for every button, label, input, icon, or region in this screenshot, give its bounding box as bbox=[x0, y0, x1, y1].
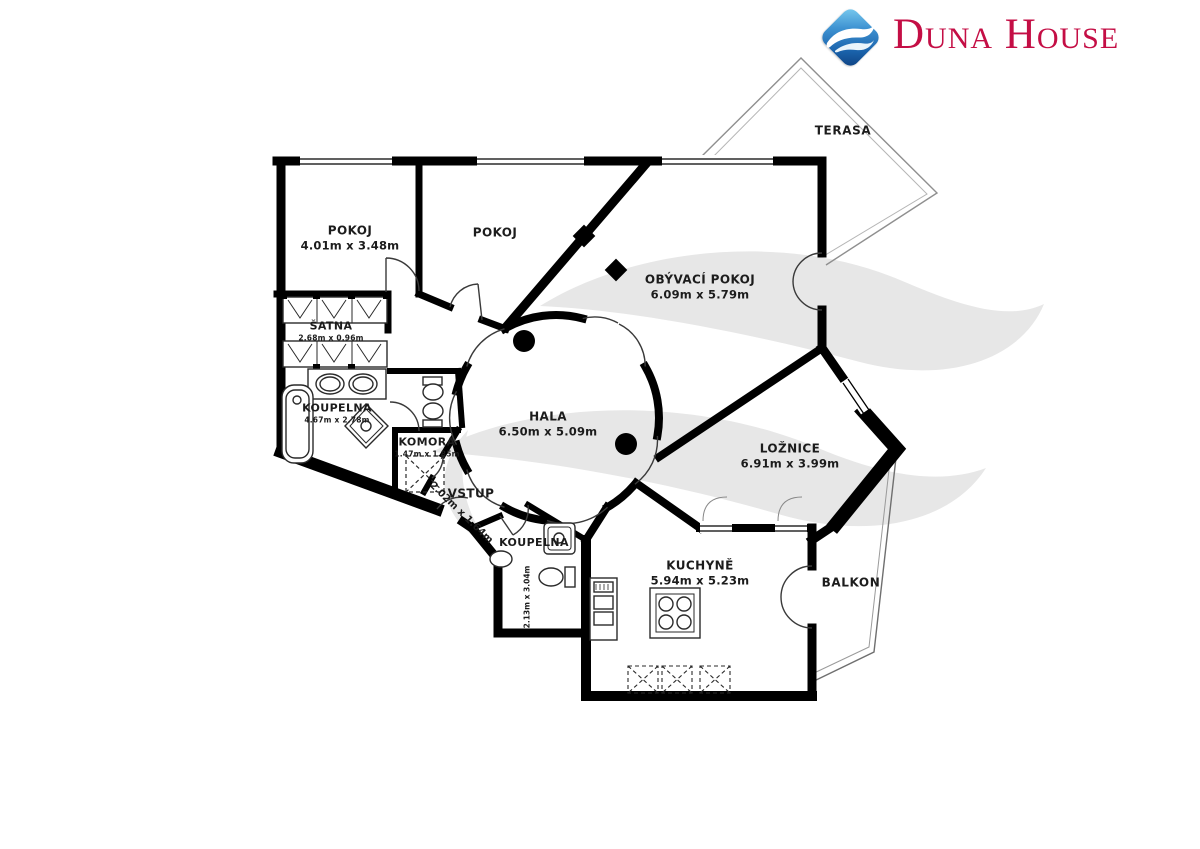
toilet2-icon bbox=[539, 567, 575, 587]
room-label-komora: KOMORA 1.47m x 1.85m bbox=[394, 435, 459, 458]
floorplan-drawing bbox=[0, 0, 1200, 849]
room-label-terasa: TERASA bbox=[815, 124, 871, 139]
floorplan-page: POKOJ 4.01m x 3.48m POKOJ OBÝVACÍ POKOJ … bbox=[0, 0, 1200, 849]
room-label-koupelna-1: KOUPELNA 4.67m x 2.78m bbox=[302, 401, 372, 424]
kitchen-counter-icon bbox=[590, 578, 617, 640]
double-sink-icon bbox=[308, 369, 386, 399]
brand-logo: Duna House bbox=[0, 0, 1200, 90]
sink2-icon bbox=[490, 551, 512, 567]
stove-icon bbox=[650, 588, 700, 638]
room-label-obyvaci-pokoj: OBÝVACÍ POKOJ 6.09m x 5.79m bbox=[645, 272, 755, 301]
room-label-pokoj1: POKOJ 4.01m x 3.48m bbox=[301, 223, 400, 252]
room-label-balkon: BALKON bbox=[822, 576, 881, 591]
brand-name: Duna House bbox=[893, 13, 1119, 56]
room-label-kuchyne: KUCHYNĚ 5.94m x 5.23m bbox=[651, 558, 750, 587]
wave-icon bbox=[824, 22, 878, 54]
room-label-loznice: LOŽNICE 6.91m x 3.99m bbox=[741, 441, 840, 470]
room-label-satna: ŠATNA 2.68m x 0.96m bbox=[298, 319, 363, 342]
room-label-pokoj2: POKOJ bbox=[473, 226, 517, 241]
toilet-icon bbox=[423, 377, 443, 427]
room-label-koupelna-2: KOUPELNA bbox=[499, 536, 569, 550]
kitchen-units-icon bbox=[628, 666, 730, 693]
room-dims-koupelna-2: 2.13m x 3.04m bbox=[523, 566, 532, 629]
room-label-hala: HALA 6.50m x 5.09m bbox=[499, 409, 598, 438]
